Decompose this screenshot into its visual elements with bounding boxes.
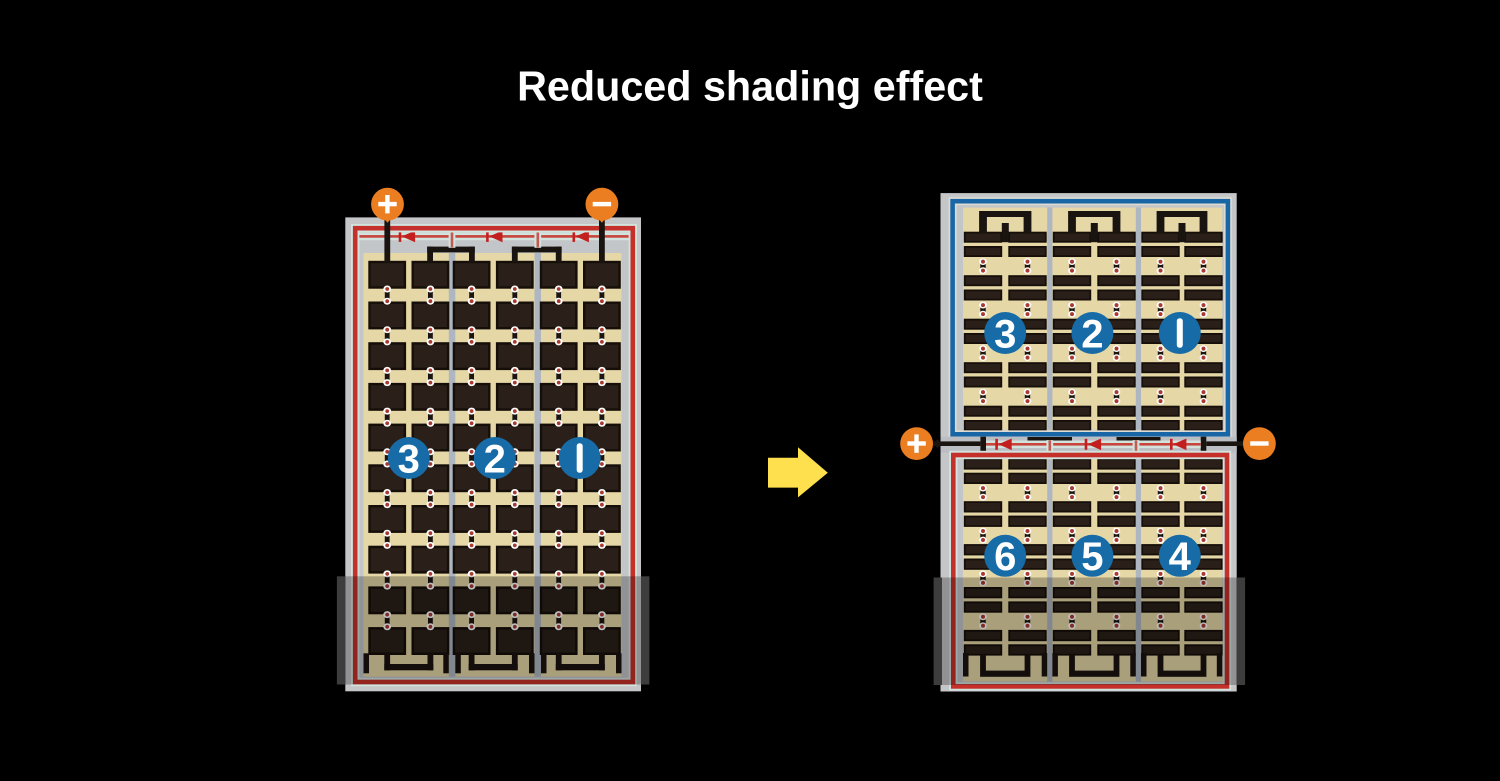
svg-text:6: 6: [994, 535, 1016, 579]
svg-text:3: 3: [994, 312, 1016, 356]
svg-text:Reduced shading effect: Reduced shading effect: [517, 64, 983, 110]
svg-text:3: 3: [398, 437, 420, 481]
svg-text:5: 5: [1081, 535, 1103, 579]
svg-text:2: 2: [1081, 312, 1103, 356]
svg-text:4: 4: [1169, 535, 1192, 579]
svg-text:2: 2: [484, 437, 506, 481]
